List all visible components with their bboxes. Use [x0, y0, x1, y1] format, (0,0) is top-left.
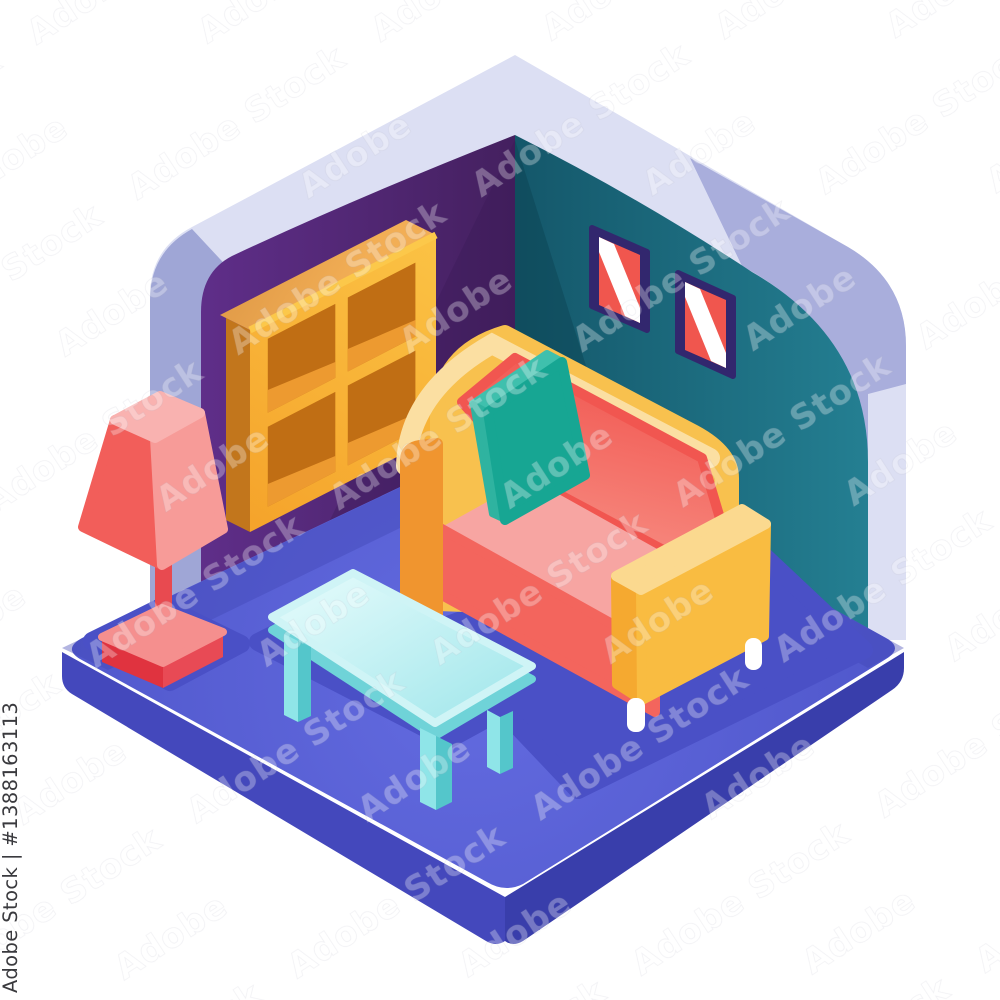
stock-image-page: Adobe Stock Adobe Stock	[0, 0, 1000, 1000]
watermark-overlay	[0, 0, 1000, 1000]
stock-illustration: Adobe Stock Adobe Stock	[0, 0, 1000, 1000]
stock-id-text: Adobe Stock | #1388163113	[0, 702, 22, 993]
